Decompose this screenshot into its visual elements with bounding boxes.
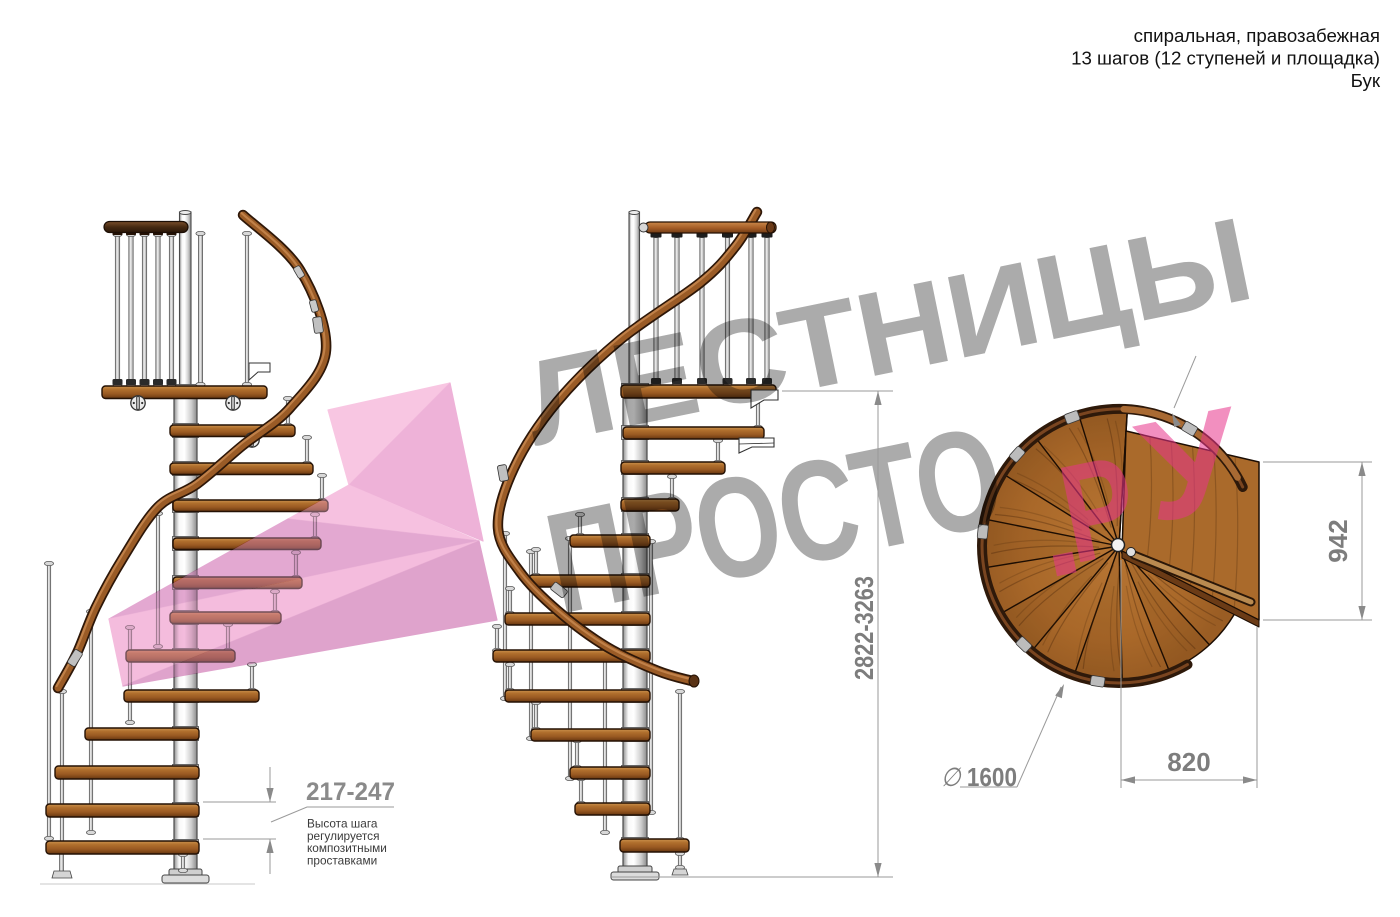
svg-text:942: 942: [1323, 519, 1353, 562]
svg-text:217-247: 217-247: [306, 778, 395, 806]
svg-text:∅ 1600: ∅ 1600: [941, 762, 1017, 792]
svg-text:2822-3263: 2822-3263: [849, 576, 879, 680]
svg-text:спиральная, правозабежная13 ша: спиральная, правозабежная13 шагов (12 ст…: [1071, 25, 1381, 91]
svg-text:820: 820: [1167, 747, 1210, 777]
svg-text:Высота шагарегулируетсякомпози: Высота шагарегулируетсякомпозитнымипрост…: [307, 817, 387, 868]
